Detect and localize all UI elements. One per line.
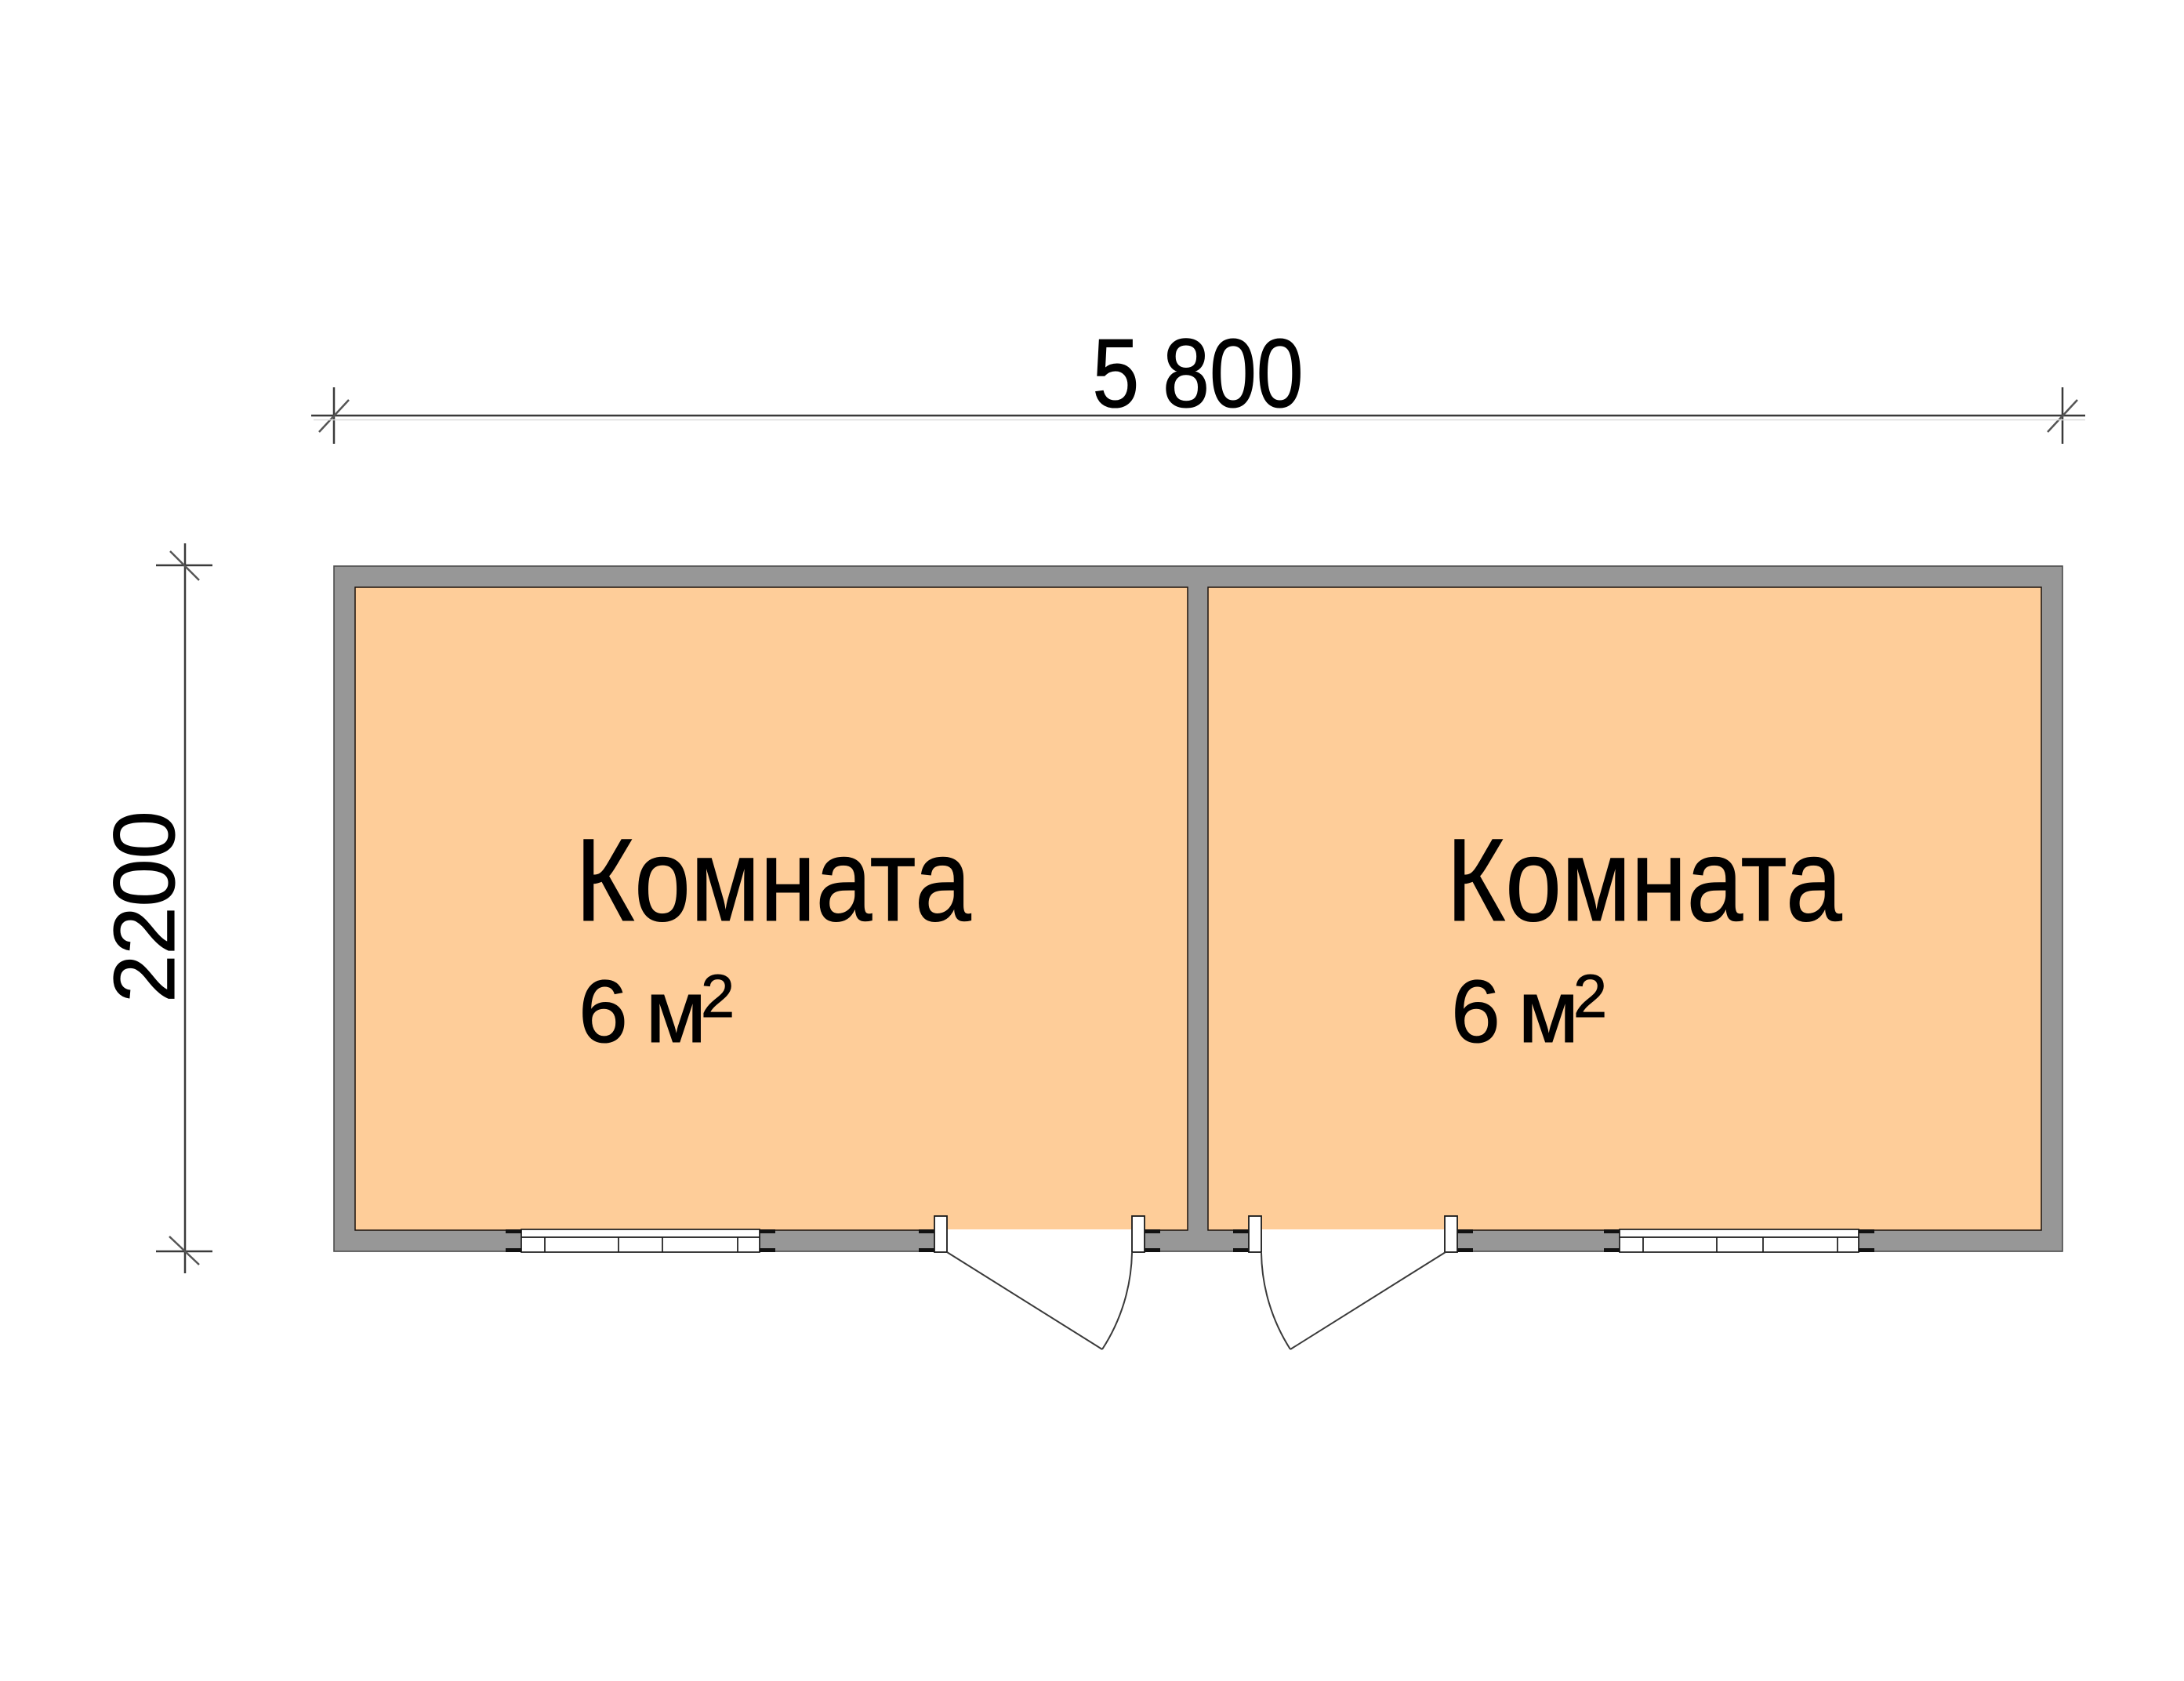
svg-text:2200: 2200 bbox=[96, 811, 193, 1003]
svg-text:5 800: 5 800 bbox=[1092, 319, 1303, 428]
svg-text:Комната: Комната bbox=[1446, 814, 1842, 946]
svg-text:Комната: Комната bbox=[575, 814, 971, 946]
